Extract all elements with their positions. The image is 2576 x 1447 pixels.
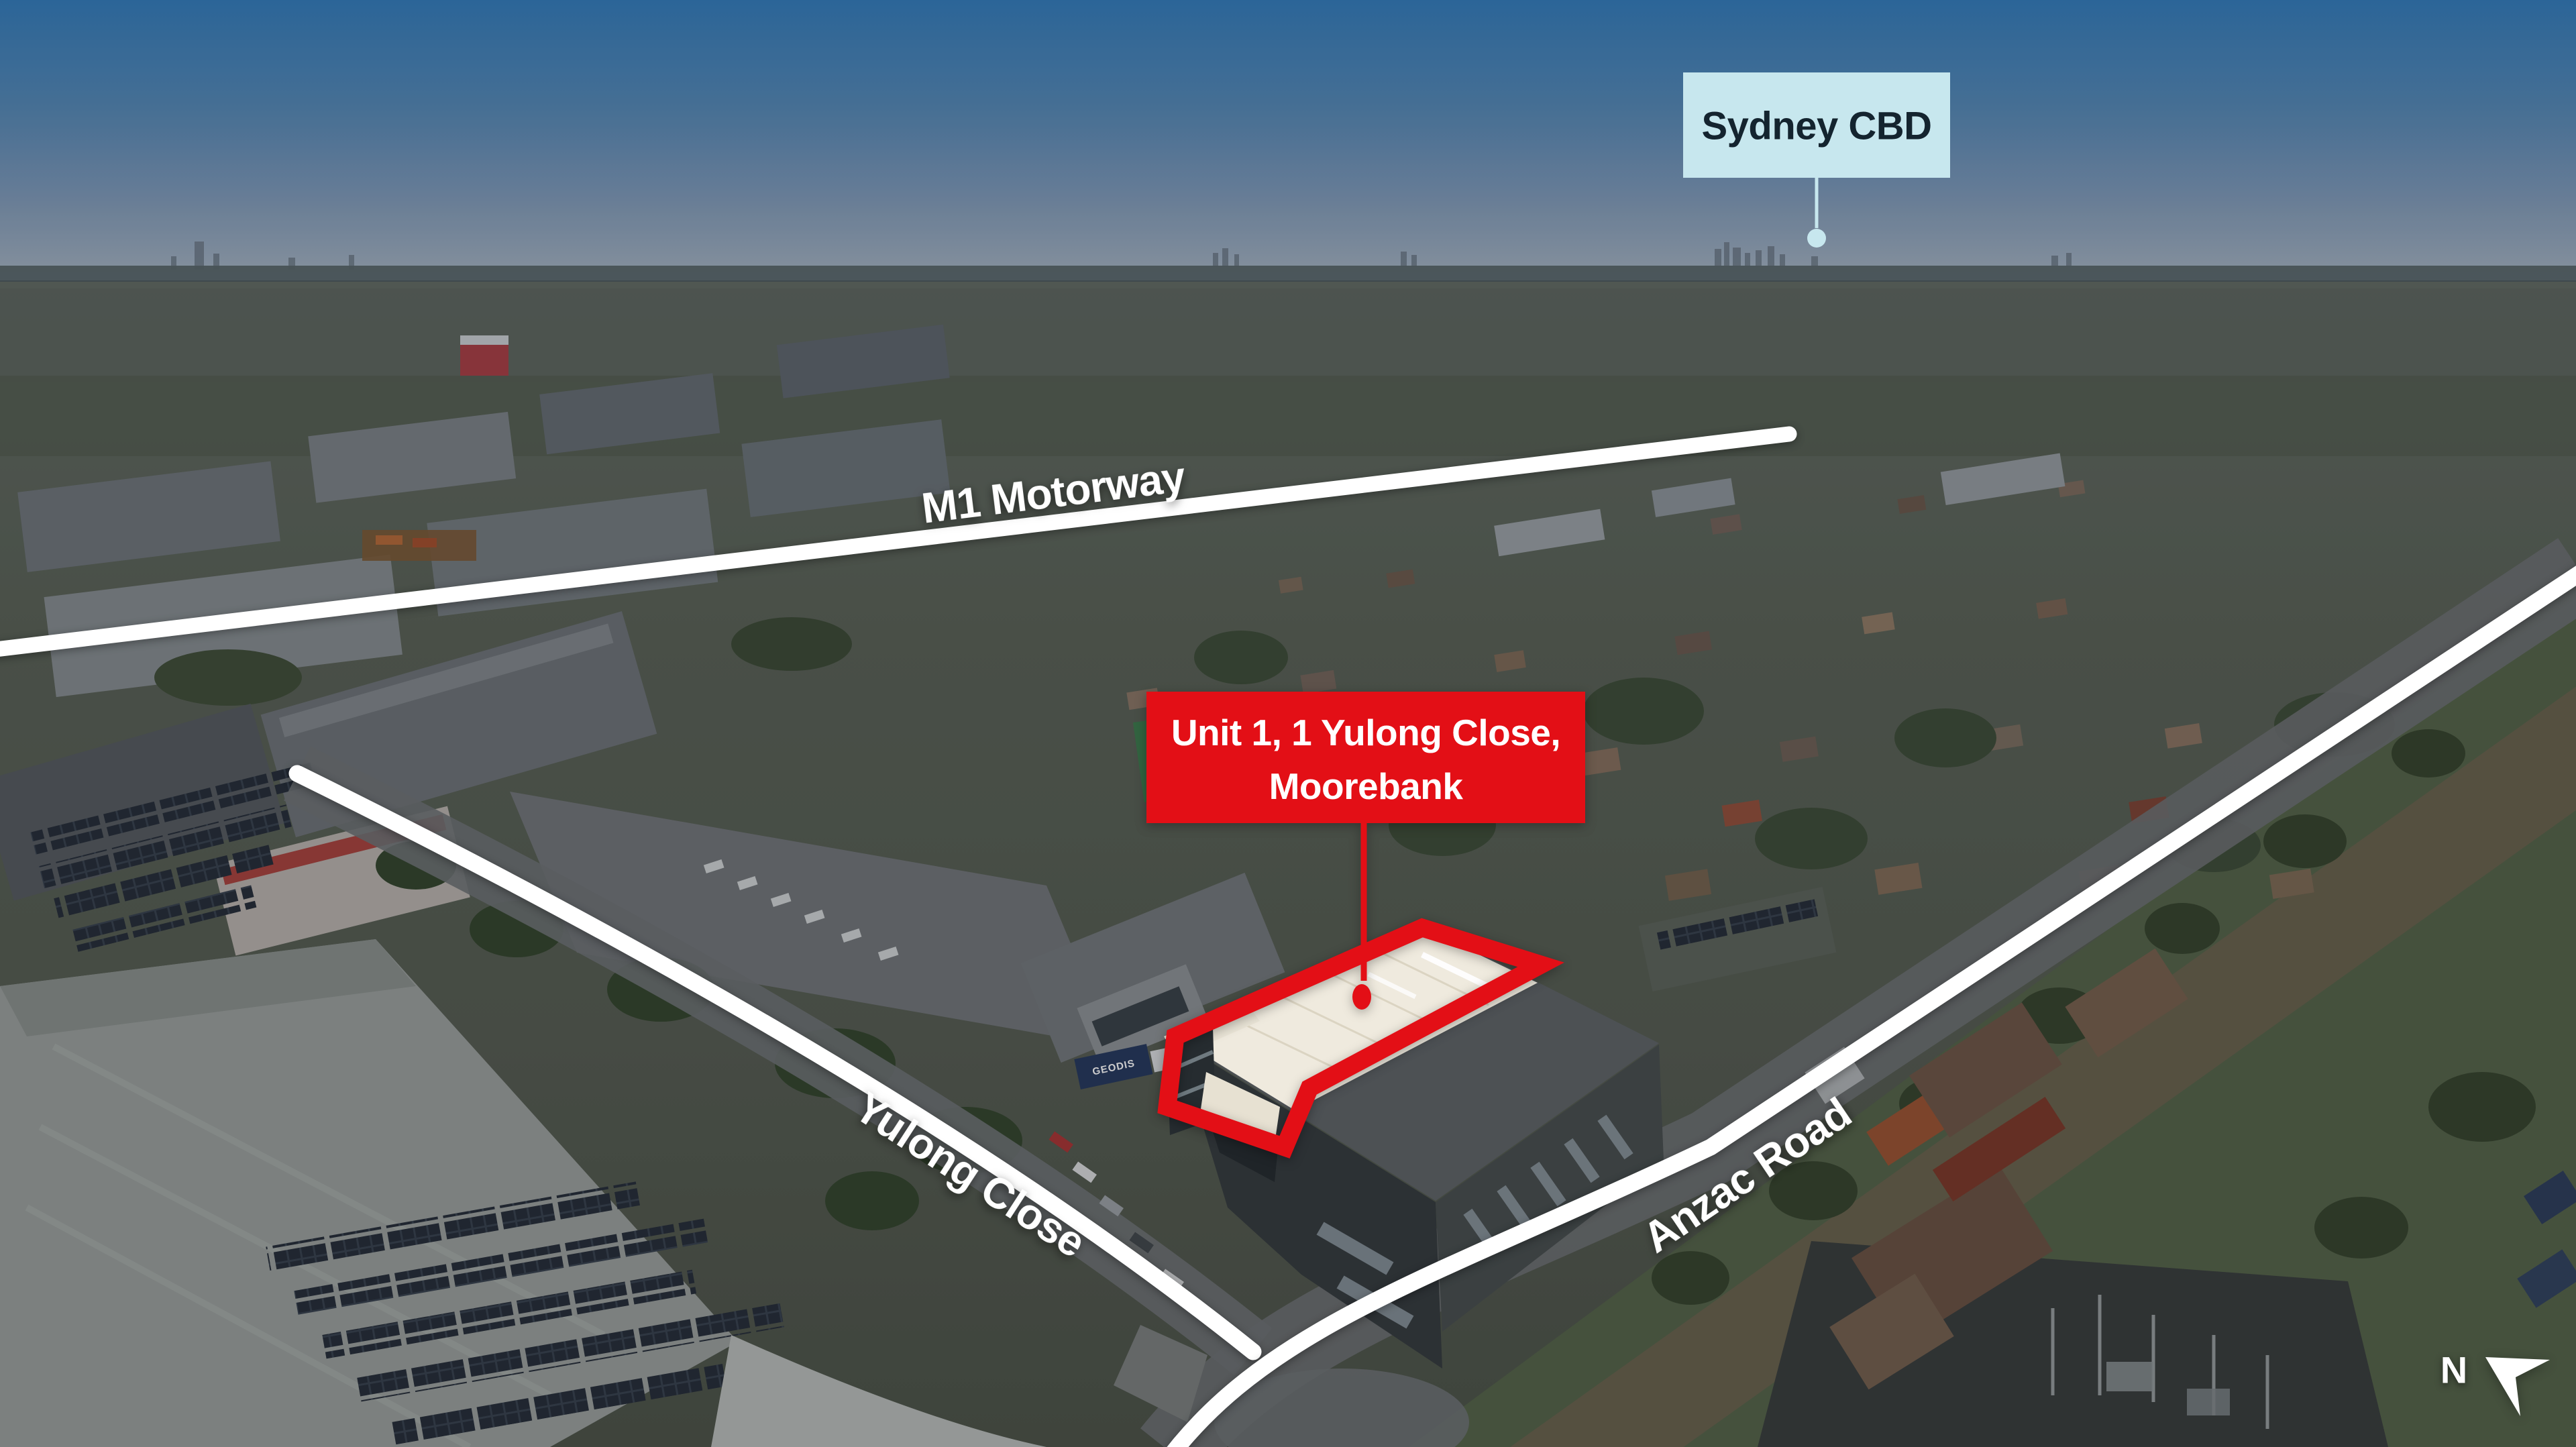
cbd-callout-label: Sydney CBD [1701, 105, 1931, 148]
annotated-aerial-photo: GEODIS M1 Motorway Yulong Close Anzac Ro… [0, 0, 2576, 1447]
property-leader-dot [1352, 984, 1371, 1010]
property-callout-line2: Moorebank [1269, 765, 1464, 807]
cbd-leader-dot [1807, 229, 1826, 248]
north-label: N [2440, 1349, 2467, 1391]
property-callout-line1: Unit 1, 1 Yulong Close, [1171, 712, 1560, 753]
